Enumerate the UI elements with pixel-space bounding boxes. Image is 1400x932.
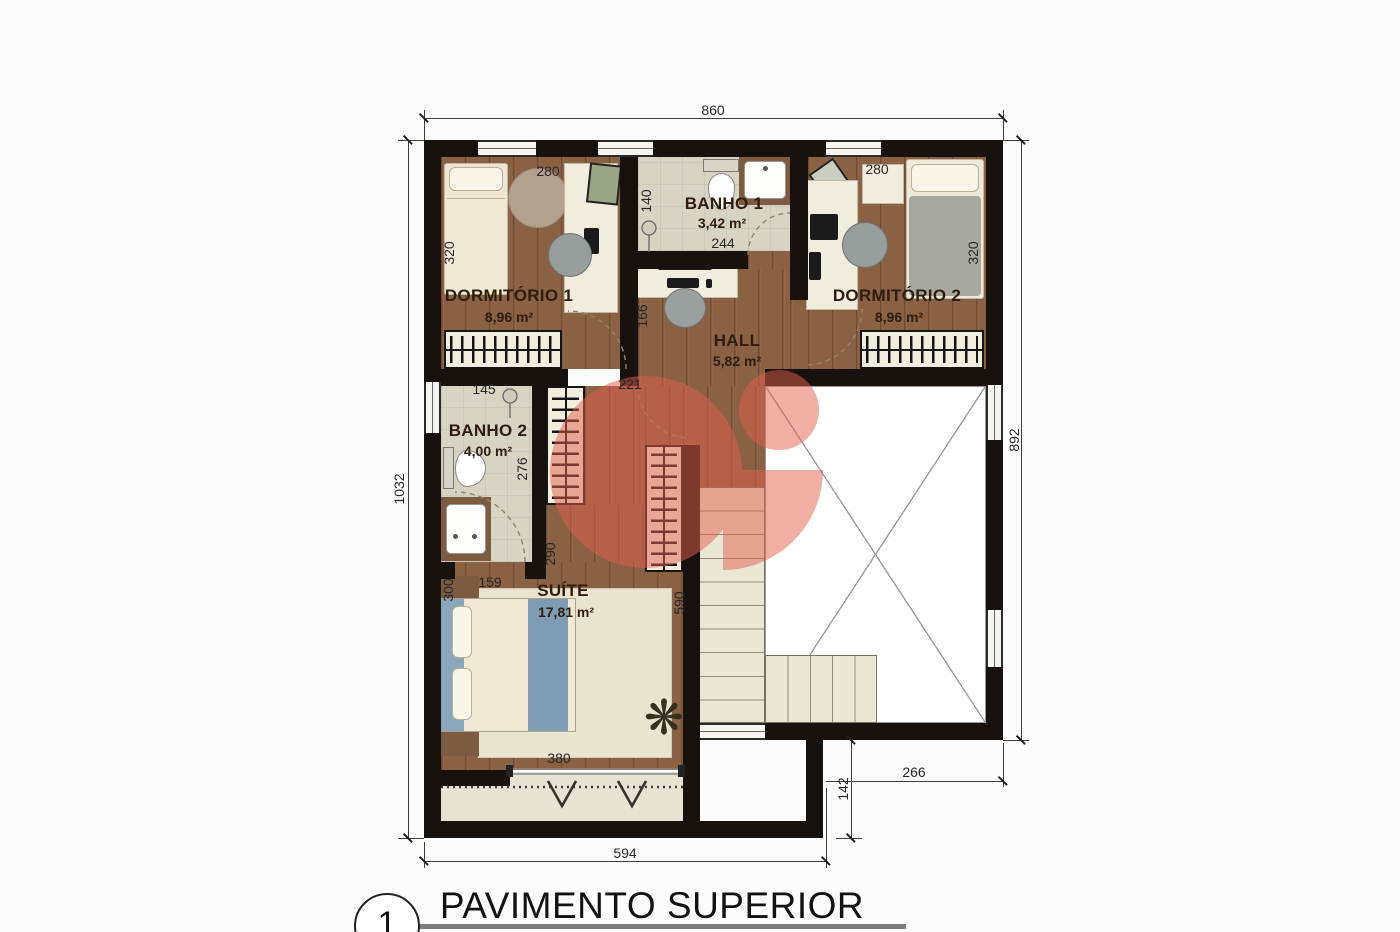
room-area-hall: 5,82 m² xyxy=(713,353,761,369)
dim-banho1-width: 140 xyxy=(638,189,654,212)
dim-offset-height: 142 xyxy=(835,777,851,800)
sheet-number: 1 xyxy=(378,905,397,932)
dim-banho2-depth: 276 xyxy=(514,457,530,480)
room-label-dormitorio2: DORMITÓRIO 2 xyxy=(833,286,961,306)
dim-suite-offset: 159 xyxy=(478,574,501,590)
ext-line xyxy=(424,842,425,868)
dim-line-top xyxy=(424,118,1003,119)
dim-dorm2-depth: 320 xyxy=(965,241,981,264)
room-label-hall: HALL xyxy=(714,331,761,351)
dim-bottom-width: 594 xyxy=(613,845,636,861)
dim-dorm1-width: 280 xyxy=(536,163,559,179)
floor-plan-sheet: ❋ xyxy=(0,0,1400,932)
dim-corridor-length: 290 xyxy=(542,542,558,565)
room-area-suite: 17,81 m² xyxy=(538,604,594,620)
dim-suite-side: 300 xyxy=(440,578,456,601)
ext-line xyxy=(1003,110,1004,140)
dim-left-height: 1032 xyxy=(391,473,407,504)
ext-line xyxy=(1003,140,1029,141)
room-label-suite: SUÍTE xyxy=(537,581,589,601)
dim-suite-width: 380 xyxy=(547,750,570,766)
dim-offset-width: 266 xyxy=(902,764,925,780)
logo-watermark xyxy=(0,0,1400,932)
dim-banho1-length: 244 xyxy=(711,235,734,251)
room-label-dormitorio1: DORMITÓRIO 1 xyxy=(445,286,573,306)
ext-line xyxy=(826,788,827,868)
title-underline xyxy=(420,924,906,929)
room-label-banho2: BANHO 2 xyxy=(449,421,528,441)
room-area-dormitorio2: 8,96 m² xyxy=(875,309,923,325)
ext-line xyxy=(1003,740,1029,741)
ext-line xyxy=(424,110,425,140)
dim-suite-depth: 590 xyxy=(671,591,687,614)
room-area-banho1: 3,42 m² xyxy=(698,215,746,231)
sheet-title: PAVIMENTO SUPERIOR xyxy=(440,885,864,927)
dim-line-bottom xyxy=(424,861,826,862)
dim-dorm2-width: 280 xyxy=(865,161,888,177)
dim-dorm1-depth: 320 xyxy=(441,241,457,264)
room-label-banho1: BANHO 1 xyxy=(685,194,764,214)
room-area-banho2: 4,00 m² xyxy=(464,443,512,459)
dim-overall-width: 860 xyxy=(701,102,724,118)
room-area-dormitorio1: 8,96 m² xyxy=(485,309,533,325)
dim-line-offset-width xyxy=(826,781,1003,782)
dim-banho2-width: 145 xyxy=(472,381,495,397)
dim-line-left xyxy=(408,140,409,838)
dim-right-height: 892 xyxy=(1006,428,1022,451)
dim-line-offset-height xyxy=(851,740,852,838)
ext-line xyxy=(836,838,862,839)
dim-hall-opening: 221 xyxy=(618,376,641,392)
dim-hall-width: 166 xyxy=(634,304,650,327)
